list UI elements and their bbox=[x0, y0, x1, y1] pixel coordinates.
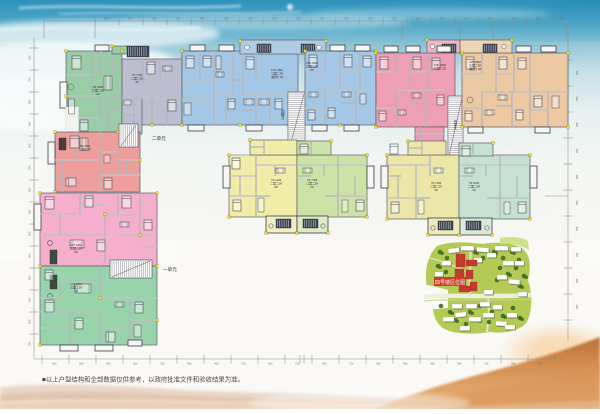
svg-text:360: 360 bbox=[133, 362, 138, 366]
svg-text:360: 360 bbox=[538, 362, 543, 366]
svg-text:360: 360 bbox=[488, 17, 493, 21]
svg-text:330: 330 bbox=[28, 165, 32, 170]
svg-text:300: 300 bbox=[106, 362, 111, 366]
svg-text:300: 300 bbox=[575, 304, 579, 309]
svg-text:330: 330 bbox=[248, 17, 253, 21]
svg-text:3#: 3# bbox=[135, 80, 139, 84]
svg-text:300: 300 bbox=[79, 362, 84, 366]
svg-text:四单元: 四单元 bbox=[453, 120, 457, 130]
svg-text:450: 450 bbox=[416, 17, 421, 21]
svg-text:330: 330 bbox=[28, 341, 32, 346]
svg-text:360: 360 bbox=[575, 278, 579, 283]
svg-text:450: 450 bbox=[575, 226, 579, 231]
svg-text:330: 330 bbox=[28, 55, 32, 60]
svg-text:二单元: 二单元 bbox=[152, 135, 166, 142]
svg-text:730: 730 bbox=[160, 362, 165, 366]
svg-text:450: 450 bbox=[28, 319, 32, 324]
svg-text:730: 730 bbox=[349, 362, 354, 366]
svg-text:390: 390 bbox=[224, 17, 229, 21]
svg-text:450: 450 bbox=[200, 17, 205, 21]
svg-text:450: 450 bbox=[52, 362, 57, 366]
svg-text:360: 360 bbox=[187, 362, 192, 366]
svg-text:330: 330 bbox=[536, 17, 541, 21]
svg-text:390: 390 bbox=[296, 17, 301, 21]
svg-text:二室二厅: 二室二厅 bbox=[79, 147, 91, 152]
svg-text:360: 360 bbox=[28, 231, 32, 236]
svg-text:390: 390 bbox=[457, 362, 462, 366]
svg-text:730: 730 bbox=[484, 362, 489, 366]
svg-text:390: 390 bbox=[152, 17, 157, 21]
svg-text:(複式) 2#: (複式) 2# bbox=[469, 66, 482, 71]
svg-text:390: 390 bbox=[376, 362, 381, 366]
svg-text:450: 450 bbox=[28, 275, 32, 280]
svg-text:360: 360 bbox=[28, 99, 32, 104]
svg-text:450: 450 bbox=[268, 362, 273, 366]
svg-text:360: 360 bbox=[575, 122, 579, 127]
svg-text:三室二厅: 三室二厅 bbox=[434, 66, 446, 71]
svg-text:360: 360 bbox=[28, 143, 32, 148]
svg-text:450: 450 bbox=[575, 148, 579, 153]
svg-text:300: 300 bbox=[368, 17, 373, 21]
svg-text:2#: 2# bbox=[74, 250, 78, 254]
svg-text:(複式) 2#: (複式) 2# bbox=[271, 74, 284, 79]
svg-text:300: 300 bbox=[320, 17, 325, 21]
svg-text:730: 730 bbox=[241, 362, 246, 366]
svg-text:4#: 4# bbox=[434, 188, 438, 192]
svg-text:3#: 3# bbox=[472, 188, 476, 192]
svg-text:390: 390 bbox=[560, 17, 565, 21]
svg-text:360: 360 bbox=[104, 17, 109, 21]
svg-text:390: 390 bbox=[430, 362, 435, 366]
svg-text:四号楼区位图: 四号楼区位图 bbox=[435, 279, 465, 286]
svg-text:360: 360 bbox=[464, 17, 469, 21]
svg-text:390: 390 bbox=[128, 17, 133, 21]
svg-text:390: 390 bbox=[322, 362, 327, 366]
svg-text:2#: 2# bbox=[96, 92, 100, 96]
svg-text:420: 420 bbox=[512, 17, 517, 21]
svg-text:1#楼梯: 1#楼梯 bbox=[280, 109, 285, 120]
svg-text:2#: 2# bbox=[310, 185, 314, 189]
svg-text:360: 360 bbox=[28, 121, 32, 126]
svg-text:330: 330 bbox=[28, 77, 32, 82]
svg-text:450: 450 bbox=[214, 362, 219, 366]
svg-text:420: 420 bbox=[272, 17, 277, 21]
svg-text:■以上户型结构和全部数据仅供参考，以政府批准文件和验收结果为: ■以上户型结构和全部数据仅供参考，以政府批准文件和验收结果为准。 bbox=[42, 375, 244, 384]
svg-text:450: 450 bbox=[575, 252, 579, 257]
svg-text:6#: 6# bbox=[274, 185, 278, 189]
svg-text:330: 330 bbox=[392, 17, 397, 21]
svg-text:730: 730 bbox=[295, 362, 300, 366]
svg-text:1#: 1# bbox=[74, 289, 78, 293]
svg-text:300: 300 bbox=[28, 187, 32, 192]
svg-text:390: 390 bbox=[440, 17, 445, 21]
svg-text:360: 360 bbox=[176, 17, 181, 21]
svg-text:360: 360 bbox=[575, 200, 579, 205]
svg-text:3#: 3# bbox=[310, 68, 314, 72]
svg-text:450: 450 bbox=[575, 70, 579, 75]
svg-text:450: 450 bbox=[403, 362, 408, 366]
svg-text:450: 450 bbox=[575, 96, 579, 101]
svg-text:390: 390 bbox=[344, 17, 349, 21]
svg-text:300: 300 bbox=[28, 297, 32, 302]
svg-text:300: 300 bbox=[28, 209, 32, 214]
svg-text:一单元: 一单元 bbox=[163, 266, 177, 273]
svg-text:390: 390 bbox=[511, 362, 516, 366]
svg-text:300: 300 bbox=[28, 253, 32, 258]
svg-text:360: 360 bbox=[575, 174, 579, 179]
